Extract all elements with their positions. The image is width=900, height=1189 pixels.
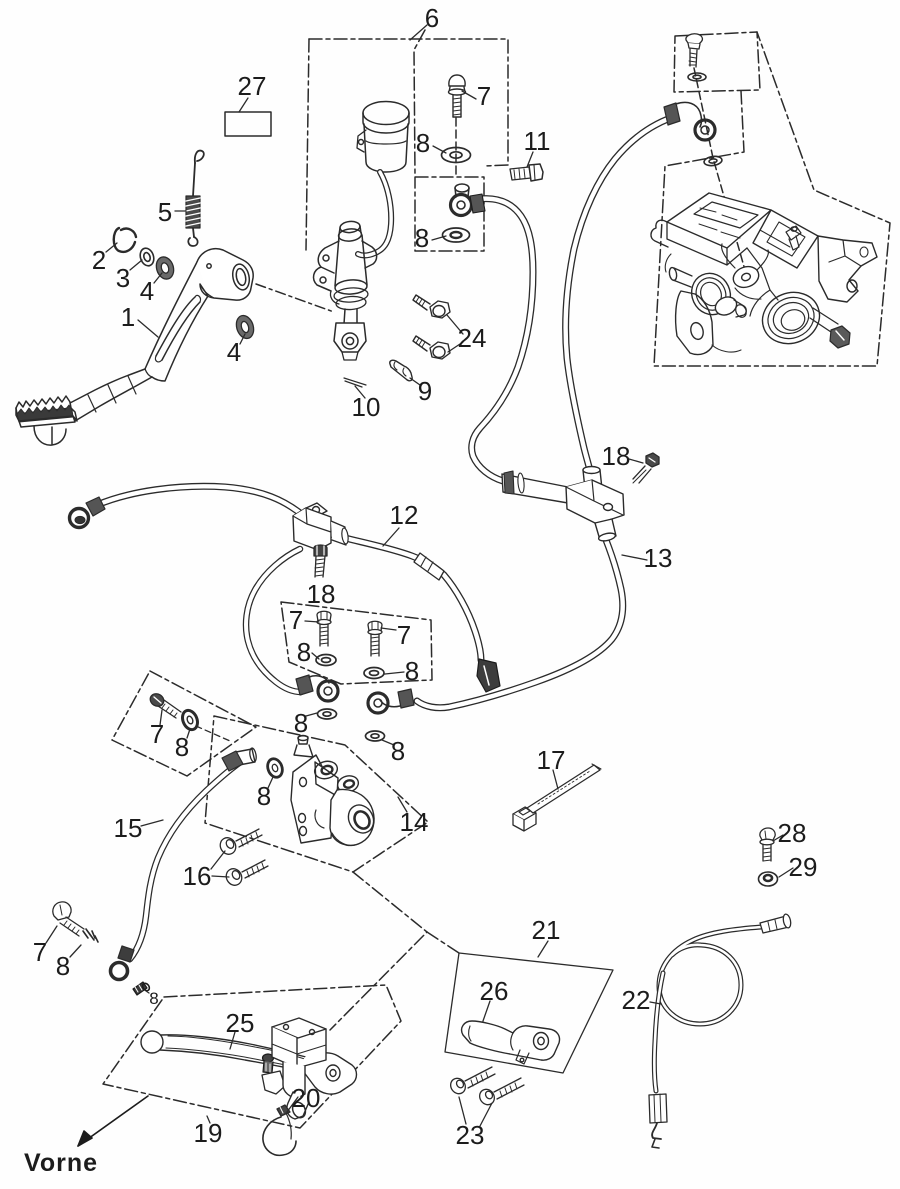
- svg-text:13: 13: [644, 543, 673, 573]
- svg-text:8: 8: [149, 989, 158, 1008]
- svg-text:6: 6: [425, 3, 439, 33]
- svg-text:28: 28: [778, 818, 807, 848]
- svg-text:7: 7: [397, 620, 411, 650]
- svg-text:1: 1: [121, 302, 135, 332]
- svg-text:7: 7: [477, 81, 491, 111]
- svg-text:18: 18: [307, 579, 336, 609]
- svg-text:8: 8: [416, 128, 430, 158]
- svg-text:22: 22: [622, 985, 651, 1015]
- svg-text:16: 16: [183, 861, 212, 891]
- svg-text:8: 8: [294, 708, 308, 738]
- svg-text:7: 7: [33, 937, 47, 967]
- svg-text:20: 20: [292, 1083, 321, 1113]
- svg-text:19: 19: [194, 1118, 223, 1148]
- svg-text:8: 8: [405, 656, 419, 686]
- svg-text:8: 8: [391, 736, 405, 766]
- svg-text:29: 29: [789, 852, 818, 882]
- svg-text:5: 5: [158, 197, 172, 227]
- svg-text:24: 24: [458, 323, 487, 353]
- svg-text:8: 8: [175, 732, 189, 762]
- svg-text:26: 26: [480, 976, 509, 1006]
- svg-text:2: 2: [92, 245, 106, 275]
- svg-text:21: 21: [532, 915, 561, 945]
- svg-text:11: 11: [524, 126, 551, 156]
- svg-text:7: 7: [289, 605, 303, 635]
- svg-text:8: 8: [56, 951, 70, 981]
- svg-text:8: 8: [257, 781, 271, 811]
- svg-text:9: 9: [418, 376, 432, 406]
- svg-text:23: 23: [456, 1120, 485, 1150]
- svg-text:18: 18: [602, 441, 631, 471]
- svg-text:15: 15: [114, 813, 143, 843]
- svg-text:4: 4: [140, 276, 154, 306]
- svg-text:Vorne: Vorne: [24, 1149, 98, 1177]
- svg-text:27: 27: [238, 71, 267, 101]
- svg-text:4: 4: [227, 337, 241, 367]
- svg-text:17: 17: [537, 745, 566, 775]
- svg-text:8: 8: [297, 637, 311, 667]
- svg-text:25: 25: [226, 1008, 255, 1038]
- svg-text:12: 12: [390, 500, 419, 530]
- svg-text:3: 3: [116, 263, 130, 293]
- svg-text:7: 7: [150, 719, 164, 749]
- svg-text:8: 8: [415, 223, 429, 253]
- svg-text:14: 14: [400, 807, 429, 837]
- svg-text:10: 10: [352, 392, 381, 422]
